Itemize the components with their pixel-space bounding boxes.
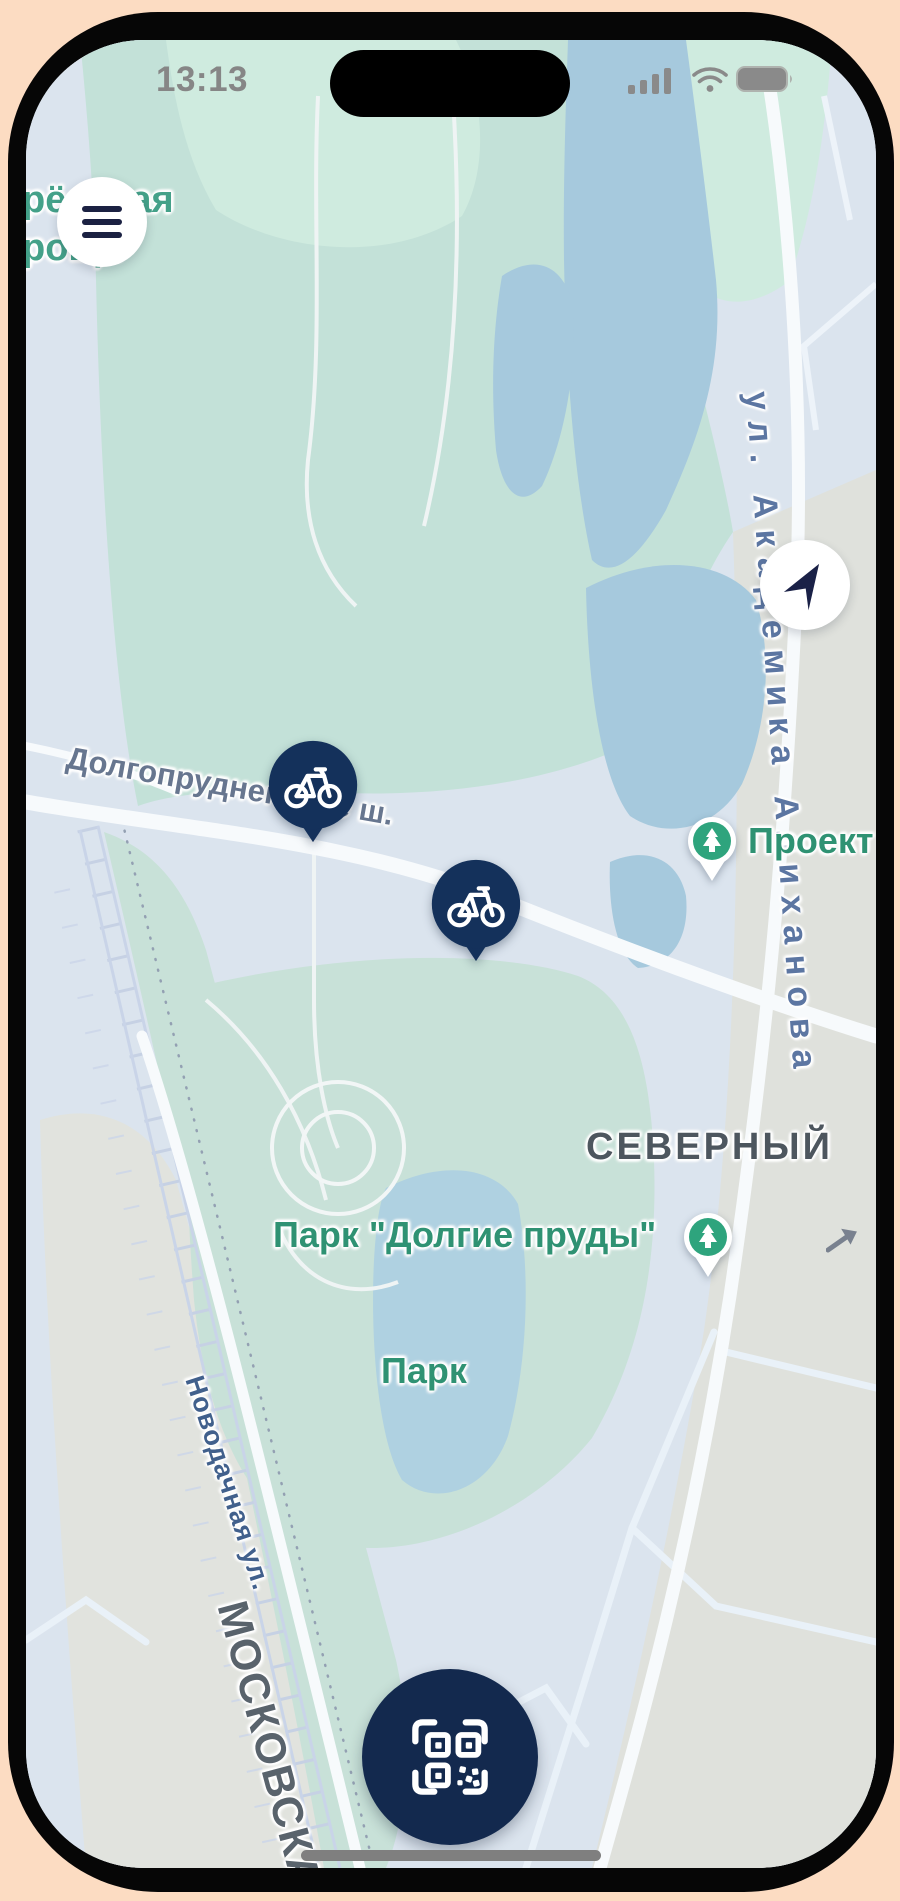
map-label-park-dolgie-prudy: Парк "Долгие пруды" [273, 1214, 656, 1256]
park-pin-proekt[interactable] [684, 815, 740, 888]
locate-me-button[interactable] [760, 540, 850, 630]
phone-frame: рёзовая роща Долгопрудненское ш. ул. Ака… [8, 12, 894, 1892]
wifi-icon [692, 66, 728, 93]
map-label-severny-district: СЕВЕРНЫЙ [586, 1126, 833, 1169]
qr-code-scan-icon [408, 1715, 492, 1799]
bike-station-marker-2[interactable] [430, 858, 522, 968]
battery-icon [736, 66, 798, 92]
status-time: 13:13 [144, 60, 260, 100]
hamburger-menu-icon [80, 204, 124, 240]
menu-button[interactable] [57, 177, 147, 267]
cellular-signal-icon [628, 64, 674, 94]
map-label-park: Парк [381, 1350, 467, 1392]
app-screen: рёзовая роща Долгопрудненское ш. ул. Ака… [26, 40, 876, 1868]
bike-station-marker-1[interactable] [267, 739, 359, 849]
park-pin-dolgie-prudy[interactable] [680, 1211, 736, 1284]
qr-scan-button[interactable] [362, 1669, 538, 1845]
oneway-arrow-icon [826, 1224, 860, 1259]
home-indicator[interactable] [301, 1850, 601, 1861]
dynamic-island [330, 50, 570, 117]
map-label-proekt: Проект [748, 820, 874, 862]
navigation-arrow-icon [774, 554, 836, 616]
